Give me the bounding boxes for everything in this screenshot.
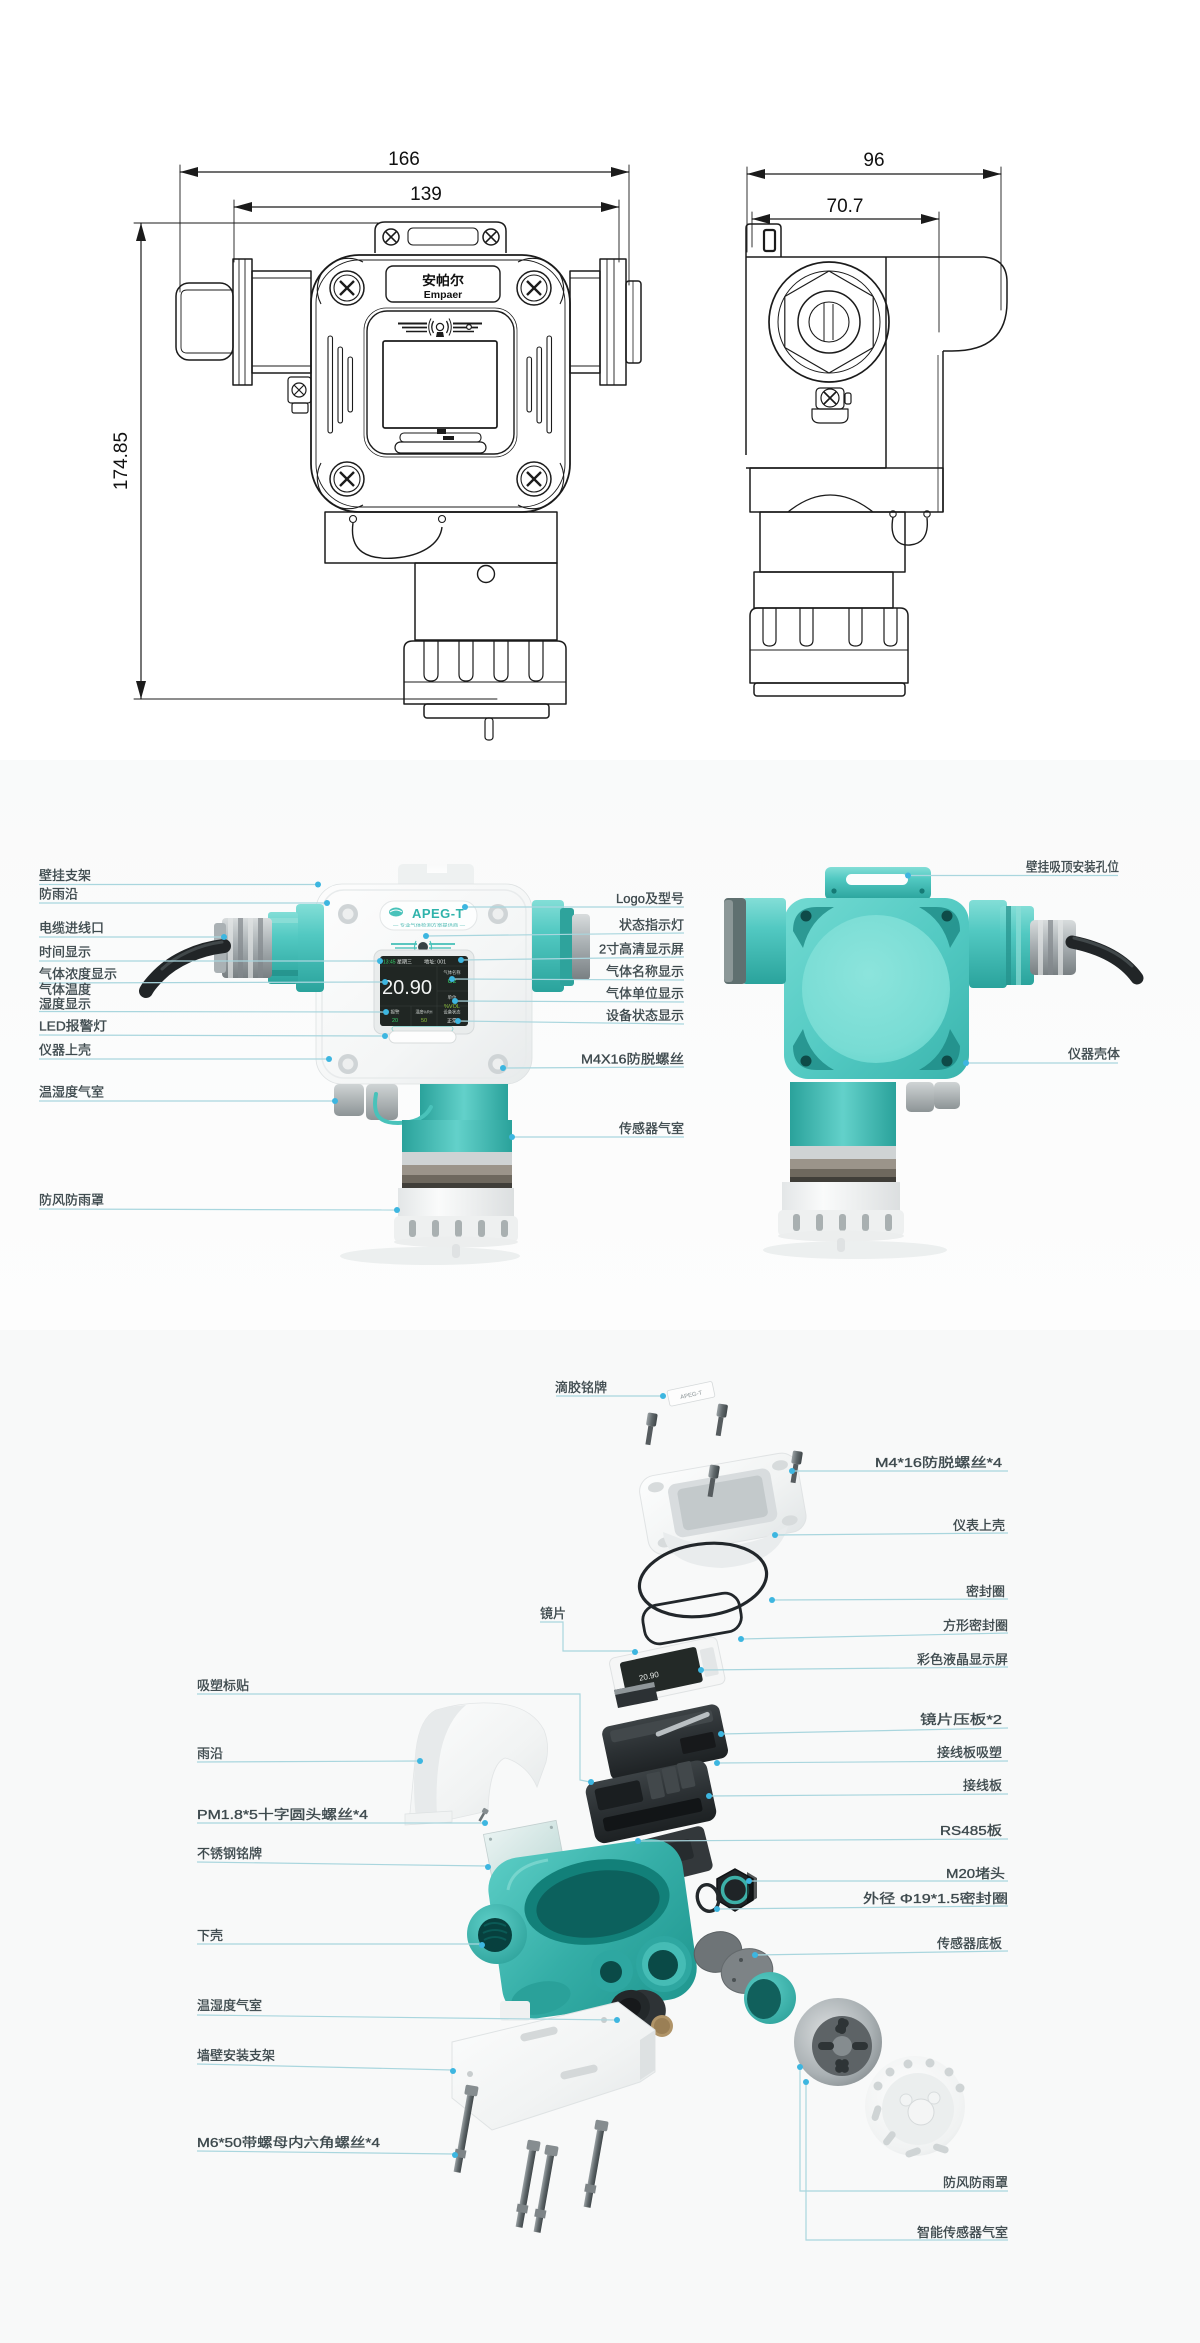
svg-text:50: 50 — [421, 1018, 427, 1024]
svg-text:智能传感器气室: 智能传感器气室 — [917, 2225, 1008, 2240]
svg-text:报警: 报警 — [391, 1009, 401, 1016]
svg-text:湿度显示: 湿度显示 — [39, 997, 91, 1012]
svg-text:13:45: 13:45 — [383, 960, 396, 966]
svg-text:20: 20 — [392, 1018, 398, 1024]
svg-text:下壳: 下壳 — [197, 1928, 223, 1943]
svg-text:彩色液晶显示屏: 彩色液晶显示屏 — [917, 1652, 1008, 1667]
svg-text:Empaer: Empaer — [424, 289, 463, 301]
svg-text:电缆进线口: 电缆进线口 — [39, 921, 104, 936]
svg-text:壁挂支架: 壁挂支架 — [39, 868, 91, 883]
svg-text:APEG-T: APEG-T — [412, 906, 464, 921]
svg-text:滴胶铭牌: 滴胶铭牌 — [555, 1380, 607, 1395]
svg-text:时间显示: 时间显示 — [39, 945, 91, 960]
svg-text:M4X16防脱螺丝: M4X16防脱螺丝 — [581, 1052, 684, 1067]
svg-text:— 专业气体检测方案提供商 —: — 专业气体检测方案提供商 — — [393, 922, 466, 929]
svg-text:2寸高清显示屏: 2寸高清显示屏 — [599, 942, 684, 957]
svg-text:M6*50带螺母内六角螺丝*4: M6*50带螺母内六角螺丝*4 — [197, 2135, 380, 2150]
svg-text:外径 Φ19*1.5密封圈: 外径 Φ19*1.5密封圈 — [863, 1891, 1008, 1906]
svg-text:M4*16防脱螺丝*4: M4*16防脱螺丝*4 — [875, 1455, 1002, 1470]
svg-text:防雨沿: 防雨沿 — [39, 887, 78, 902]
svg-text:仪器壳体: 仪器壳体 — [1068, 1047, 1120, 1062]
svg-text:气体名称显示: 气体名称显示 — [606, 964, 684, 979]
svg-text:70.7: 70.7 — [827, 196, 864, 217]
svg-text:方形密封圈: 方形密封圈 — [943, 1618, 1008, 1633]
svg-text:PM1.8*5十字圆头螺丝*4: PM1.8*5十字圆头螺丝*4 — [197, 1807, 368, 1822]
svg-text:设备状态: 设备状态 — [444, 1009, 462, 1016]
svg-text:气体单位显示: 气体单位显示 — [606, 986, 684, 1001]
svg-text:气体浓度显示: 气体浓度显示 — [39, 967, 117, 982]
svg-text:地址: 001: 地址: 001 — [424, 959, 446, 966]
svg-text:镜片压板*2: 镜片压板*2 — [920, 1712, 1002, 1727]
svg-text:不锈钢铭牌: 不锈钢铭牌 — [197, 1846, 262, 1861]
svg-text:M20堵头: M20堵头 — [946, 1866, 1005, 1881]
svg-text:仪表上壳: 仪表上壳 — [953, 1518, 1005, 1533]
svg-text:密封圈: 密封圈 — [966, 1584, 1005, 1599]
svg-text:LED报警灯: LED报警灯 — [39, 1019, 107, 1034]
svg-text:雨沿: 雨沿 — [197, 1746, 223, 1761]
svg-text:接线板: 接线板 — [963, 1778, 1002, 1793]
svg-text:防风防雨罩: 防风防雨罩 — [39, 1193, 104, 1208]
svg-text:接线板吸塑: 接线板吸塑 — [937, 1745, 1002, 1760]
svg-text:174.85: 174.85 — [111, 432, 132, 490]
svg-text:墙壁安装支架: 墙壁安装支架 — [197, 2048, 275, 2063]
svg-text:RS485板: RS485板 — [940, 1823, 1002, 1838]
svg-text:壁挂吸顶安装孔位: 壁挂吸顶安装孔位 — [1026, 860, 1119, 875]
svg-text:166: 166 — [388, 149, 420, 170]
svg-text:气体名称: 气体名称 — [444, 969, 462, 976]
svg-text:吸塑标贴: 吸塑标贴 — [197, 1678, 249, 1693]
svg-text:镜片: 镜片 — [540, 1606, 566, 1621]
svg-text:气体温度: 气体温度 — [39, 982, 91, 997]
svg-text:96: 96 — [863, 150, 884, 171]
svg-text:传感器气室: 传感器气室 — [619, 1121, 684, 1136]
svg-text:温湿度气室: 温湿度气室 — [197, 1998, 262, 2013]
svg-text:状态指示灯: 状态指示灯 — [619, 918, 684, 933]
svg-text:139: 139 — [410, 184, 442, 205]
svg-text:传感器底板: 传感器底板 — [937, 1936, 1002, 1951]
svg-text:湿度%RH: 湿度%RH — [416, 1009, 433, 1016]
svg-text:仪器上壳: 仪器上壳 — [39, 1043, 91, 1058]
svg-text:Logo及型号: Logo及型号 — [616, 891, 684, 906]
svg-text:20.90: 20.90 — [382, 977, 432, 999]
svg-text:星期三: 星期三 — [397, 960, 412, 966]
svg-text:防风防雨罩: 防风防雨罩 — [943, 2175, 1008, 2190]
svg-text:安帕尔: 安帕尔 — [422, 273, 464, 288]
svg-text:温湿度气室: 温湿度气室 — [39, 1085, 104, 1100]
svg-text:设备状态显示: 设备状态显示 — [606, 1008, 684, 1023]
